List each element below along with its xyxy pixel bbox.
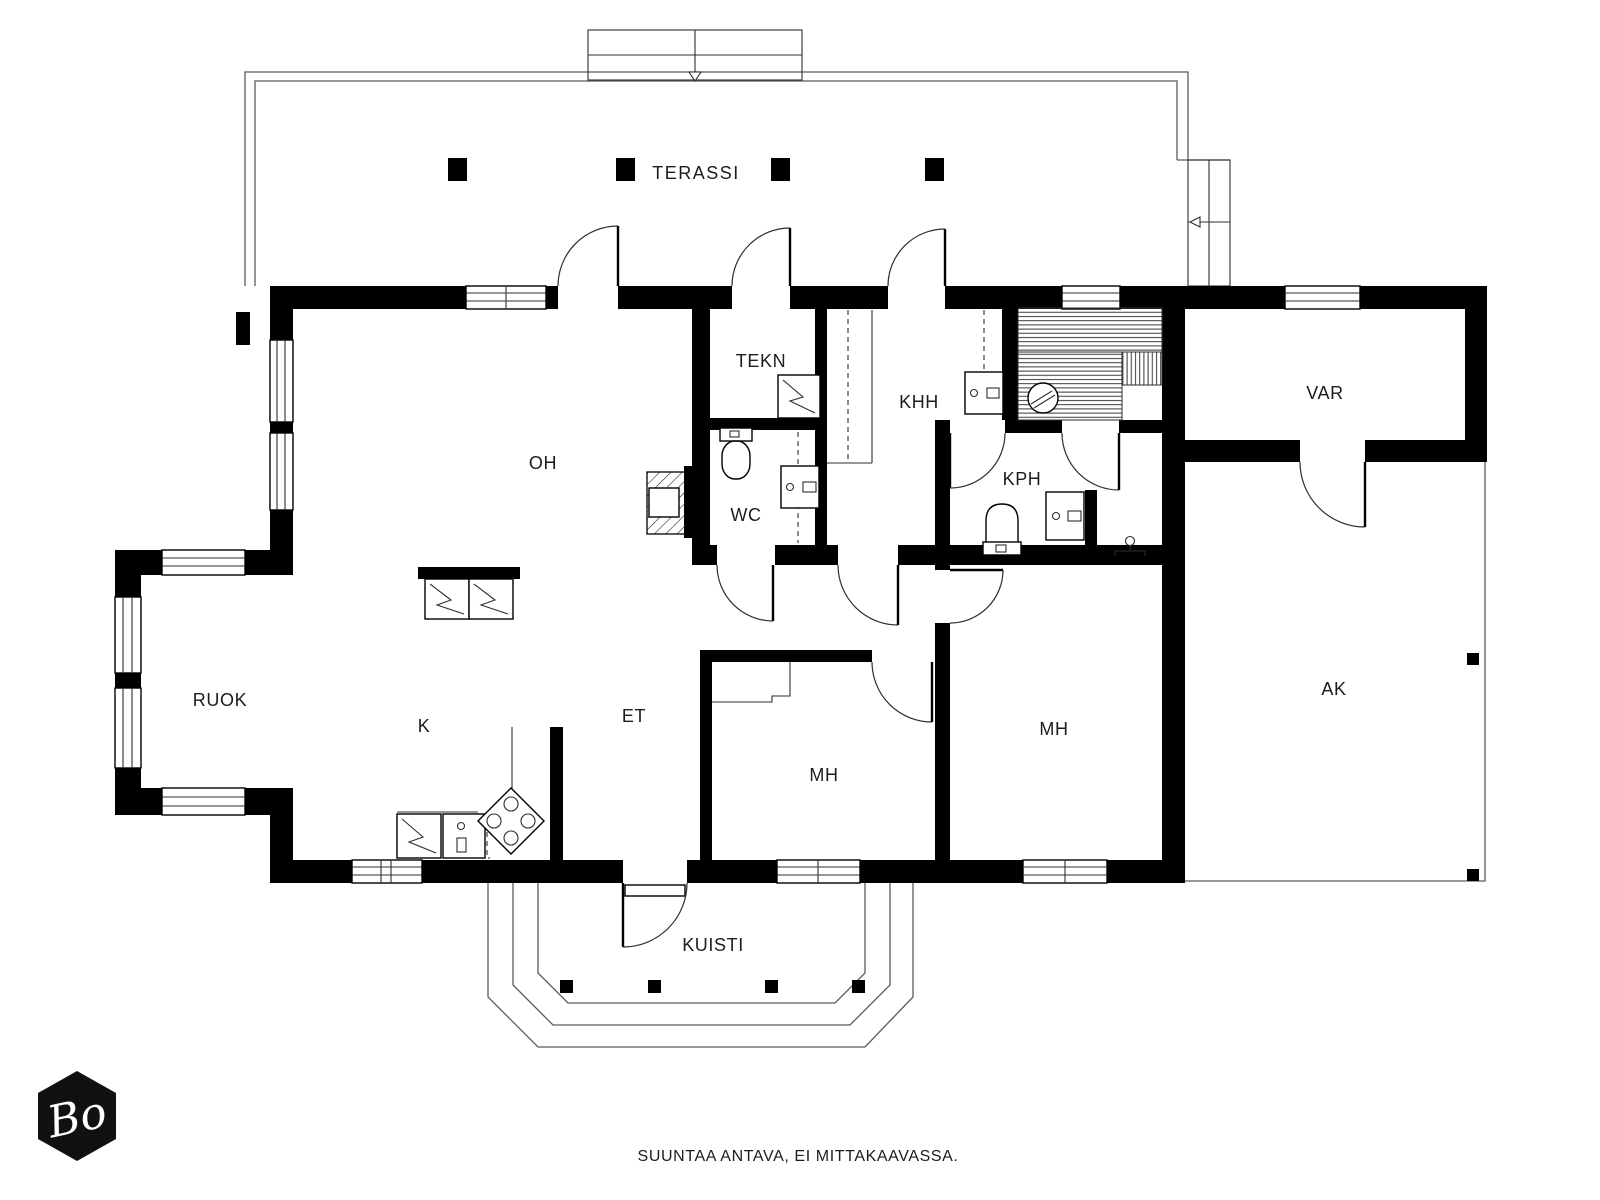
fixtures	[397, 308, 1162, 858]
kph-sink-icon	[1046, 492, 1084, 540]
room-label-oh: OH	[529, 453, 557, 473]
door-kuisti-entrance	[623, 860, 687, 947]
sauna-stove-icon	[1028, 383, 1058, 413]
room-label-wc: WC	[730, 505, 761, 525]
logo: Bo	[38, 1071, 116, 1161]
door-khh-hall	[838, 545, 898, 625]
door-mh-left	[872, 650, 932, 722]
window-mh-left-bottom	[777, 860, 860, 883]
porch	[488, 883, 913, 1047]
window-bay-left-upper	[115, 597, 141, 673]
water-heater-icon	[778, 375, 820, 418]
porch-post	[560, 980, 573, 993]
freezer-icon	[469, 579, 513, 619]
room-label-kuisti: KUISTI	[682, 935, 744, 955]
fridge-icon	[425, 579, 469, 619]
room-label-et: ET	[622, 706, 646, 726]
room-label-mh-right: MH	[1039, 719, 1068, 739]
room-label-khh: KHH	[899, 392, 939, 412]
window-oh-top	[466, 286, 546, 309]
doors	[558, 226, 1365, 947]
window-kitchen-bottom	[352, 860, 422, 883]
room-label-var: VAR	[1306, 383, 1343, 403]
room-label-tekn: TEKN	[736, 351, 786, 371]
fireplace-icon	[647, 466, 692, 538]
porch-post	[852, 980, 865, 993]
floor-plan-canvas: TERASSI OH RUOK K ET TEKN WC KHH KPH MH …	[0, 0, 1600, 1200]
room-label-terassi: TERASSI	[652, 163, 740, 183]
stove-icon	[478, 788, 544, 854]
wardrobe-icon	[712, 662, 790, 702]
door-khh-terrace	[888, 229, 945, 309]
disclaimer-text: SUUNTAA ANTAVA, EI MITTAKAAVASSA.	[638, 1148, 959, 1165]
terrace-stairs-right	[1188, 160, 1230, 286]
room-label-k: K	[418, 716, 431, 736]
terrace-post	[616, 158, 635, 181]
room-label-kph: KPH	[1003, 469, 1042, 489]
stairs-arrow-left-icon	[1190, 217, 1200, 227]
window-sauna-top	[1062, 286, 1120, 309]
room-label-mh-left: MH	[809, 765, 838, 785]
carport-post	[1467, 869, 1479, 881]
window-bay-bottom	[162, 788, 245, 815]
carport-post	[1467, 653, 1479, 665]
room-label-ak: AK	[1321, 679, 1346, 699]
terrace-post	[448, 158, 467, 181]
kitchen-stub-wall	[418, 567, 520, 579]
door-tekn-terrace	[732, 228, 790, 309]
dishwasher-icon	[397, 814, 441, 858]
washing-machine-icon	[965, 372, 1003, 414]
terrace-post	[925, 158, 944, 181]
wc-sink-icon	[781, 466, 819, 508]
carport	[1185, 462, 1485, 881]
porch-post	[765, 980, 778, 993]
porch-post	[648, 980, 661, 993]
window-bay-top	[162, 550, 245, 575]
room-label-ruok: RUOK	[193, 690, 247, 710]
door-kph	[950, 420, 1005, 488]
terrace-steps-top	[588, 30, 802, 81]
floor-plan-page: TERASSI OH RUOK K ET TEKN WC KHH KPH MH …	[0, 0, 1600, 1200]
terrace-post	[771, 158, 790, 181]
door-oh-terrace	[558, 226, 618, 309]
door-sauna	[1062, 420, 1119, 490]
window-bay-left-lower	[115, 688, 141, 768]
kph-toilet-icon	[983, 504, 1021, 555]
window-var-top	[1285, 286, 1360, 309]
shower-partition	[1085, 490, 1097, 565]
window-mh-right-bottom	[1023, 860, 1107, 883]
window-oh-left-upper	[270, 340, 293, 422]
door-mh-right	[935, 570, 1003, 623]
door-var	[1300, 440, 1365, 527]
khh-counter	[827, 310, 872, 463]
wc-toilet-icon	[720, 428, 752, 479]
terrace-end-post	[236, 312, 250, 345]
terrace-inner-edge	[255, 81, 1177, 286]
door-wc	[717, 545, 775, 621]
window-oh-left-lower	[270, 433, 293, 510]
